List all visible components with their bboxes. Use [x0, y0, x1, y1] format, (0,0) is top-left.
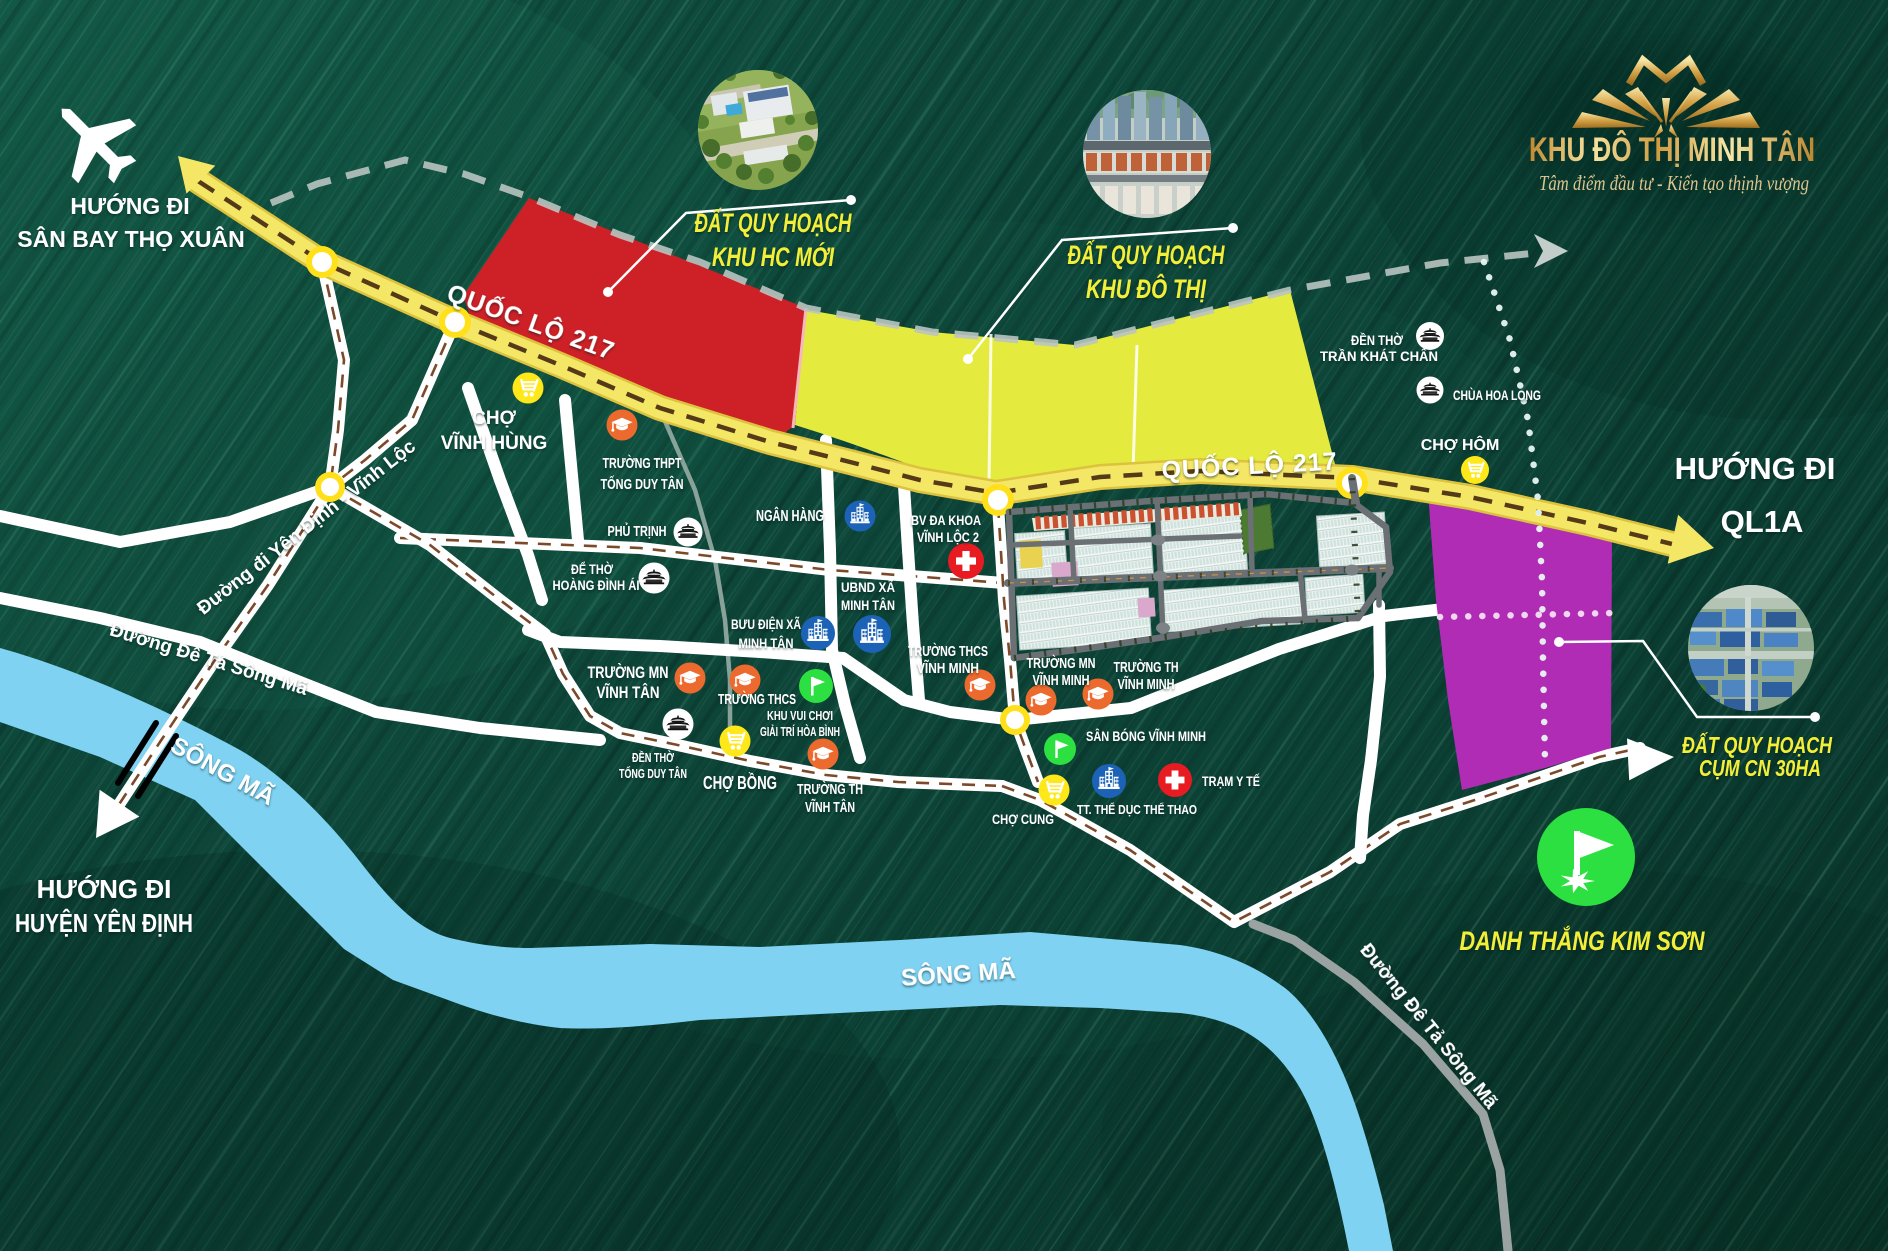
svg-text:DANH THẮNG KIM SƠN: DANH THẮNG KIM SƠN [1460, 925, 1705, 956]
svg-text:HƯỚNG ĐI: HƯỚNG ĐI [1675, 450, 1836, 486]
svg-text:PHỦ TRỊNH: PHỦ TRỊNH [608, 522, 667, 540]
svg-text:KHU HC MỚI: KHU HC MỚI [712, 241, 834, 272]
svg-text:CHỢ: CHỢ [472, 408, 516, 429]
svg-text:BV ĐA KHOA: BV ĐA KHOA [911, 512, 981, 528]
svg-text:MINH TÂN: MINH TÂN [841, 596, 895, 613]
svg-text:SÂN BAY THỌ XUÂN: SÂN BAY THỌ XUÂN [17, 225, 244, 252]
svg-text:TRƯỜNG TH: TRƯỜNG TH [1114, 658, 1179, 676]
svg-text:TỐNG DUY TÂN: TỐNG DUY TÂN [619, 766, 687, 781]
svg-text:ĐỂ THỜ: ĐỂ THỜ [571, 560, 613, 577]
svg-text:CHÙA HOA LONG: CHÙA HOA LONG [1453, 388, 1541, 403]
svg-text:TRƯỜNG TH: TRƯỜNG TH [797, 780, 863, 798]
svg-text:HUYỆN YÊN ĐỊNH: HUYỆN YÊN ĐỊNH [15, 908, 193, 938]
svg-text:ĐẤT QUY HOẠCH: ĐẤT QUY HOẠCH [1682, 731, 1832, 758]
svg-text:BƯU ĐIỆN XÃ: BƯU ĐIỆN XÃ [731, 617, 801, 632]
svg-text:CHỢ HÔM: CHỢ HÔM [1421, 435, 1500, 454]
svg-text:ĐẤT QUY HOẠCH: ĐẤT QUY HOẠCH [1068, 239, 1225, 270]
svg-text:VĨNH MINH: VĨNH MINH [1118, 675, 1175, 693]
svg-text:KHU ĐÔ THỊ: KHU ĐÔ THỊ [1086, 273, 1206, 304]
svg-text:CỤM CN 30HA: CỤM CN 30HA [1699, 755, 1821, 781]
svg-text:HOÀNG ĐÌNH ÁI: HOÀNG ĐÌNH ÁI [553, 577, 640, 593]
svg-text:GIẢI TRÍ HÒA BÌNH: GIẢI TRÍ HÒA BÌNH [760, 724, 840, 739]
svg-text:NGÂN HÀNG: NGÂN HÀNG [756, 507, 824, 525]
svg-text:MINH TÂN: MINH TÂN [739, 636, 794, 651]
svg-text:UBND XÃ: UBND XÃ [841, 578, 895, 595]
svg-text:TRƯỜNG MN: TRƯỜNG MN [588, 663, 669, 682]
svg-text:HƯỚNG ĐI: HƯỚNG ĐI [70, 192, 189, 219]
svg-text:TỐNG DUY TÂN: TỐNG DUY TÂN [601, 475, 684, 493]
svg-text:VĨNH LỘC 2: VĨNH LỘC 2 [917, 528, 979, 545]
svg-text:SÂN BÓNG VĨNH MINH: SÂN BÓNG VĨNH MINH [1086, 729, 1206, 744]
svg-text:TT. THỂ DỤC THỂ THAO: TT. THỂ DỤC THỂ THAO [1077, 802, 1197, 817]
svg-text:KHU ĐÔ THỊ MINH TÂN: KHU ĐÔ THỊ MINH TÂN [1529, 130, 1815, 169]
svg-text:TRƯỜNG THPT: TRƯỜNG THPT [603, 454, 682, 472]
svg-text:ĐỀN THỜ: ĐỀN THỜ [632, 750, 675, 765]
svg-text:QL1A: QL1A [1721, 504, 1804, 539]
svg-text:TRƯỜNG THCS: TRƯỜNG THCS [908, 642, 988, 660]
svg-text:VĨNH HÙNG: VĨNH HÙNG [441, 432, 548, 454]
svg-text:ĐỀN THỜ: ĐỀN THỜ [1351, 333, 1403, 348]
svg-text:CHỢ BỒNG: CHỢ BỒNG [703, 772, 777, 793]
svg-text:VĨNH MINH: VĨNH MINH [917, 659, 979, 677]
svg-text:TRƯỜNG THCS: TRƯỜNG THCS [718, 690, 796, 708]
svg-text:TRẠM Y TẾ: TRẠM Y TẾ [1202, 774, 1260, 789]
svg-text:ĐẤT QUY HOẠCH: ĐẤT QUY HOẠCH [695, 207, 852, 238]
svg-text:Tâm điểm đầu tư - Kiến tạo t: Tâm điểm đầu tư - Kiến tạo thịnh vượng [1539, 171, 1809, 195]
svg-text:KHU VUI CHƠI: KHU VUI CHƠI [767, 709, 833, 723]
svg-text:TRƯỜNG MN: TRƯỜNG MN [1027, 654, 1096, 672]
svg-text:VĨNH TÂN: VĨNH TÂN [805, 798, 855, 816]
svg-text:VĨNH TÂN: VĨNH TÂN [597, 682, 660, 702]
svg-text:TRẦN KHÁT CHÂN: TRẦN KHÁT CHÂN [1320, 349, 1438, 364]
svg-text:VĨNH MINH: VĨNH MINH [1033, 671, 1090, 689]
svg-text:CHỢ CUNG: CHỢ CUNG [992, 812, 1054, 827]
svg-text:HƯỚNG ĐI: HƯỚNG ĐI [37, 874, 172, 904]
